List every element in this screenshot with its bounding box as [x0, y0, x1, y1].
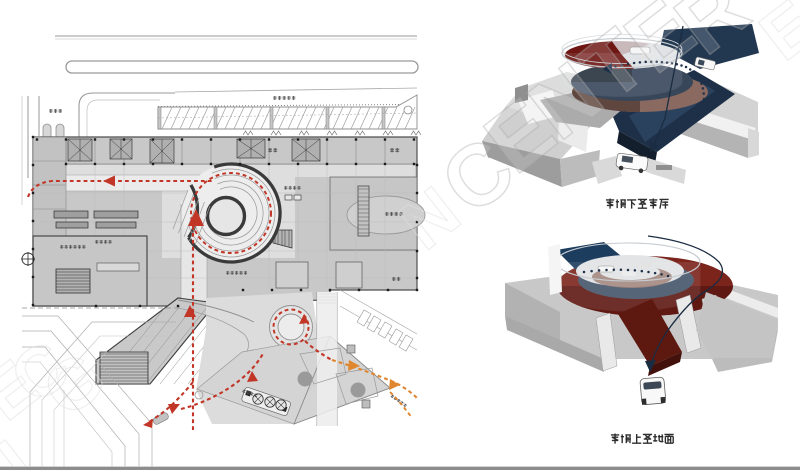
svg-text:I: I [0, 425, 48, 470]
